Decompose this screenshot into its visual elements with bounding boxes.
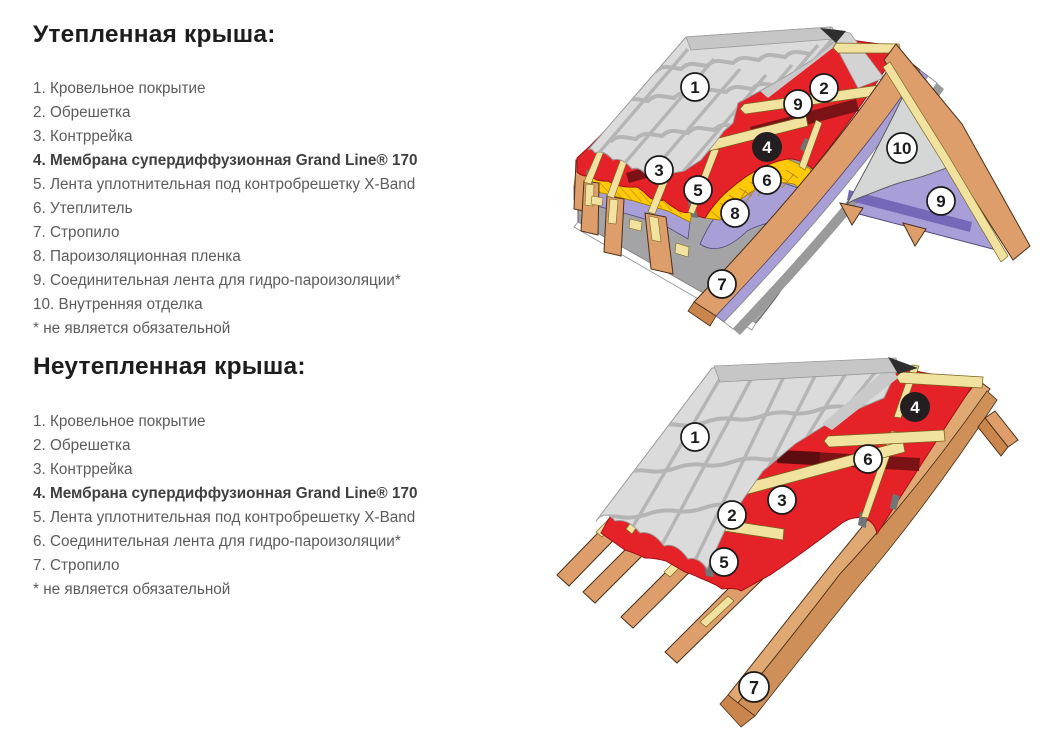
svg-text:3: 3 <box>777 491 786 510</box>
svg-text:7: 7 <box>717 275 726 294</box>
svg-text:6: 6 <box>863 450 872 469</box>
svg-text:2: 2 <box>727 506 736 525</box>
svg-text:2: 2 <box>819 79 828 98</box>
svg-text:6: 6 <box>762 171 771 190</box>
svg-text:9: 9 <box>793 95 802 114</box>
svg-text:7: 7 <box>749 678 759 698</box>
svg-text:3: 3 <box>654 161 663 180</box>
svg-text:5: 5 <box>719 553 728 572</box>
svg-text:9: 9 <box>936 192 945 211</box>
svg-text:1: 1 <box>690 428 699 447</box>
svg-text:4: 4 <box>910 398 920 417</box>
svg-text:10: 10 <box>893 139 912 158</box>
svg-text:1: 1 <box>690 78 699 97</box>
svg-text:8: 8 <box>730 204 739 223</box>
svg-text:4: 4 <box>762 138 772 157</box>
svg-text:5: 5 <box>693 181 702 200</box>
